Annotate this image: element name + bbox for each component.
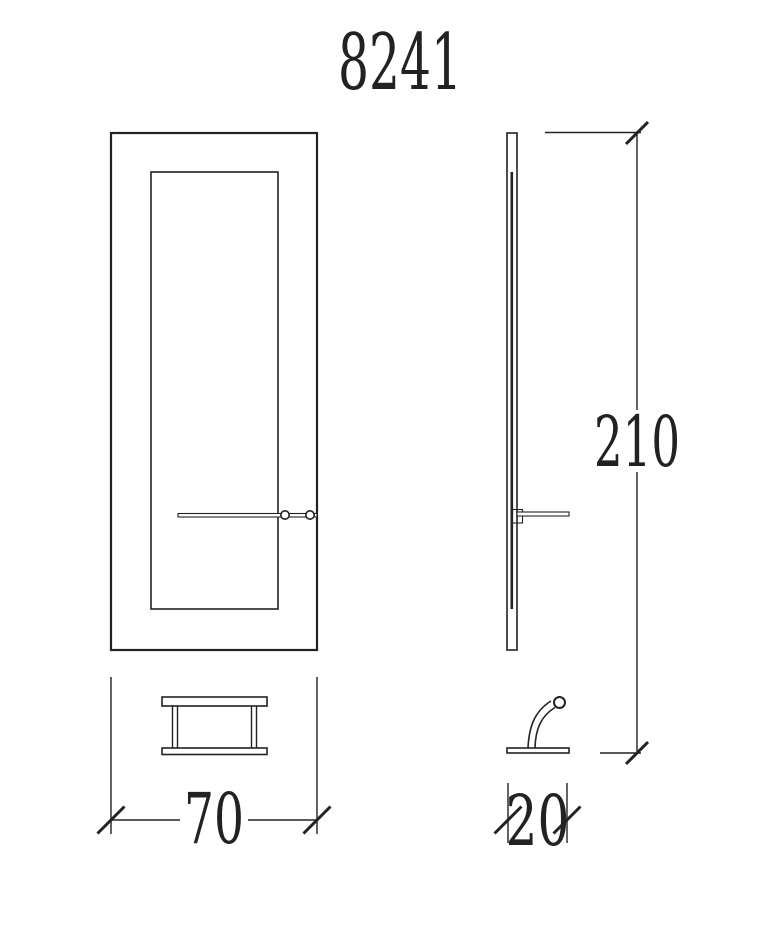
model-number-title: 8241 bbox=[338, 18, 462, 108]
side-view bbox=[507, 133, 569, 650]
front-shelf-knob-right bbox=[306, 511, 314, 519]
bracket-arm-tip bbox=[554, 697, 565, 708]
front-view bbox=[111, 133, 317, 650]
height-dimension-value: 210 bbox=[594, 401, 680, 483]
shelf-top-board bbox=[162, 697, 267, 706]
depth-dimension-value: 20 bbox=[506, 780, 570, 862]
front-mirror-panel bbox=[151, 172, 278, 609]
front-shelf bbox=[178, 514, 317, 518]
technical-drawing-canvas: 8241 bbox=[0, 0, 784, 942]
bracket-base-plate bbox=[507, 748, 569, 753]
side-shelf bbox=[517, 512, 569, 516]
shelf-bottom-board bbox=[162, 748, 267, 755]
front-shelf-knob-left bbox=[281, 511, 289, 519]
technical-drawing-page: 8241 bbox=[0, 0, 784, 942]
width-dimension-value: 70 bbox=[184, 778, 244, 860]
shelf-bracket-detail bbox=[507, 697, 569, 753]
shelf-front-detail bbox=[162, 697, 267, 755]
